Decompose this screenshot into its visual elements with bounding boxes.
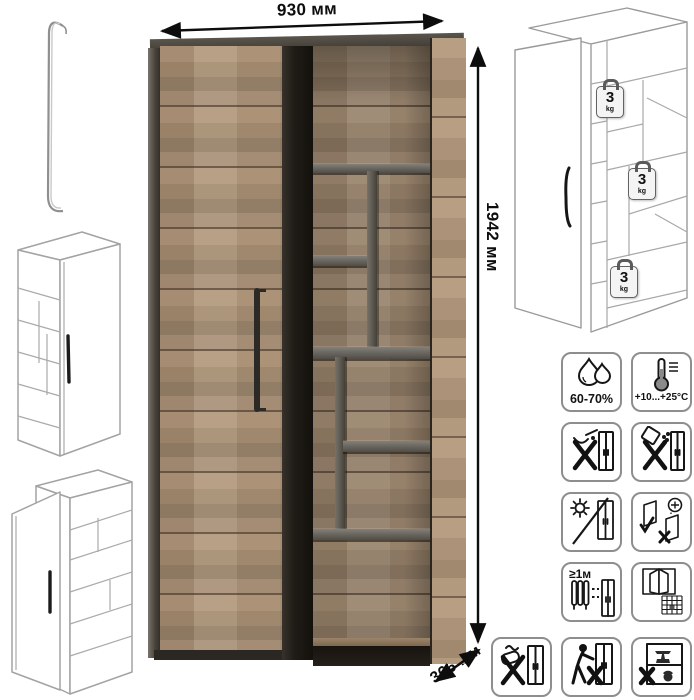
width-dimension-label: 930 мм [237, 0, 377, 22]
ventilation-icon [638, 566, 686, 616]
heater-distance-label: ≥1м [569, 567, 591, 581]
cabinet-door-handle [254, 288, 260, 412]
care-icon-heater-distance: ≥1м [561, 562, 622, 622]
shelf [313, 529, 430, 540]
care-icon-humidity: 60-70% [561, 352, 622, 412]
no-liquids-icon [568, 426, 616, 476]
wardrobe-closed-view-drawing [2, 224, 130, 464]
no-powder-icon [638, 426, 686, 476]
no-dragging-icon [568, 641, 616, 691]
heater-distance-icon [568, 579, 616, 621]
care-icon-no-sunlight [561, 492, 622, 552]
care-icon-ventilation [631, 562, 692, 622]
wardrobe-open-view-drawing [2, 460, 138, 700]
product-illustration: 930 мм 1942 мм 366 мм [0, 0, 694, 700]
handle-drawing [30, 10, 80, 225]
door-adjustment-icon [638, 496, 686, 546]
technical-view-drawing: 3 kg 3 kg 3 kg [503, 2, 694, 338]
shelf [313, 347, 430, 359]
care-icon-door-adjustment [631, 492, 692, 552]
cabinet-side-panel [430, 38, 466, 664]
care-icon-no-overloading [631, 637, 692, 697]
care-icon-temperature: +10...+25°C [631, 352, 692, 412]
care-icon-no-powder [631, 422, 692, 482]
cabinet-base [313, 646, 430, 666]
cabinet-door [160, 46, 284, 652]
no-sunlight-icon [568, 496, 616, 546]
shelf [313, 256, 370, 266]
care-icon-no-dragging [561, 637, 622, 697]
cabinet-left-edge [148, 48, 160, 658]
cabinet-plinth [154, 650, 282, 660]
humidity-icon [569, 356, 615, 392]
shelf-load-badge: 3 kg [628, 168, 656, 200]
temperature-label: +10...+25°C [633, 392, 690, 404]
height-dimension-label: 1942 мм [482, 152, 502, 322]
shelf [343, 441, 430, 452]
thermometer-icon [639, 356, 685, 392]
shelf-load-badge: 3 kg [610, 266, 638, 298]
shelf-load-badge: 3 kg [596, 86, 624, 118]
humidity-label: 60-70% [563, 392, 620, 406]
care-icon-no-scrubbing [491, 637, 552, 697]
shelf-bottom [313, 638, 430, 646]
care-icon-no-liquids [561, 422, 622, 482]
no-overloading-icon [638, 641, 686, 691]
cabinet-partition [282, 46, 313, 660]
no-scrubbing-icon [498, 641, 546, 691]
cabinet-render [148, 30, 464, 670]
shelf-divider [367, 171, 377, 347]
thumb-handle [68, 336, 69, 382]
